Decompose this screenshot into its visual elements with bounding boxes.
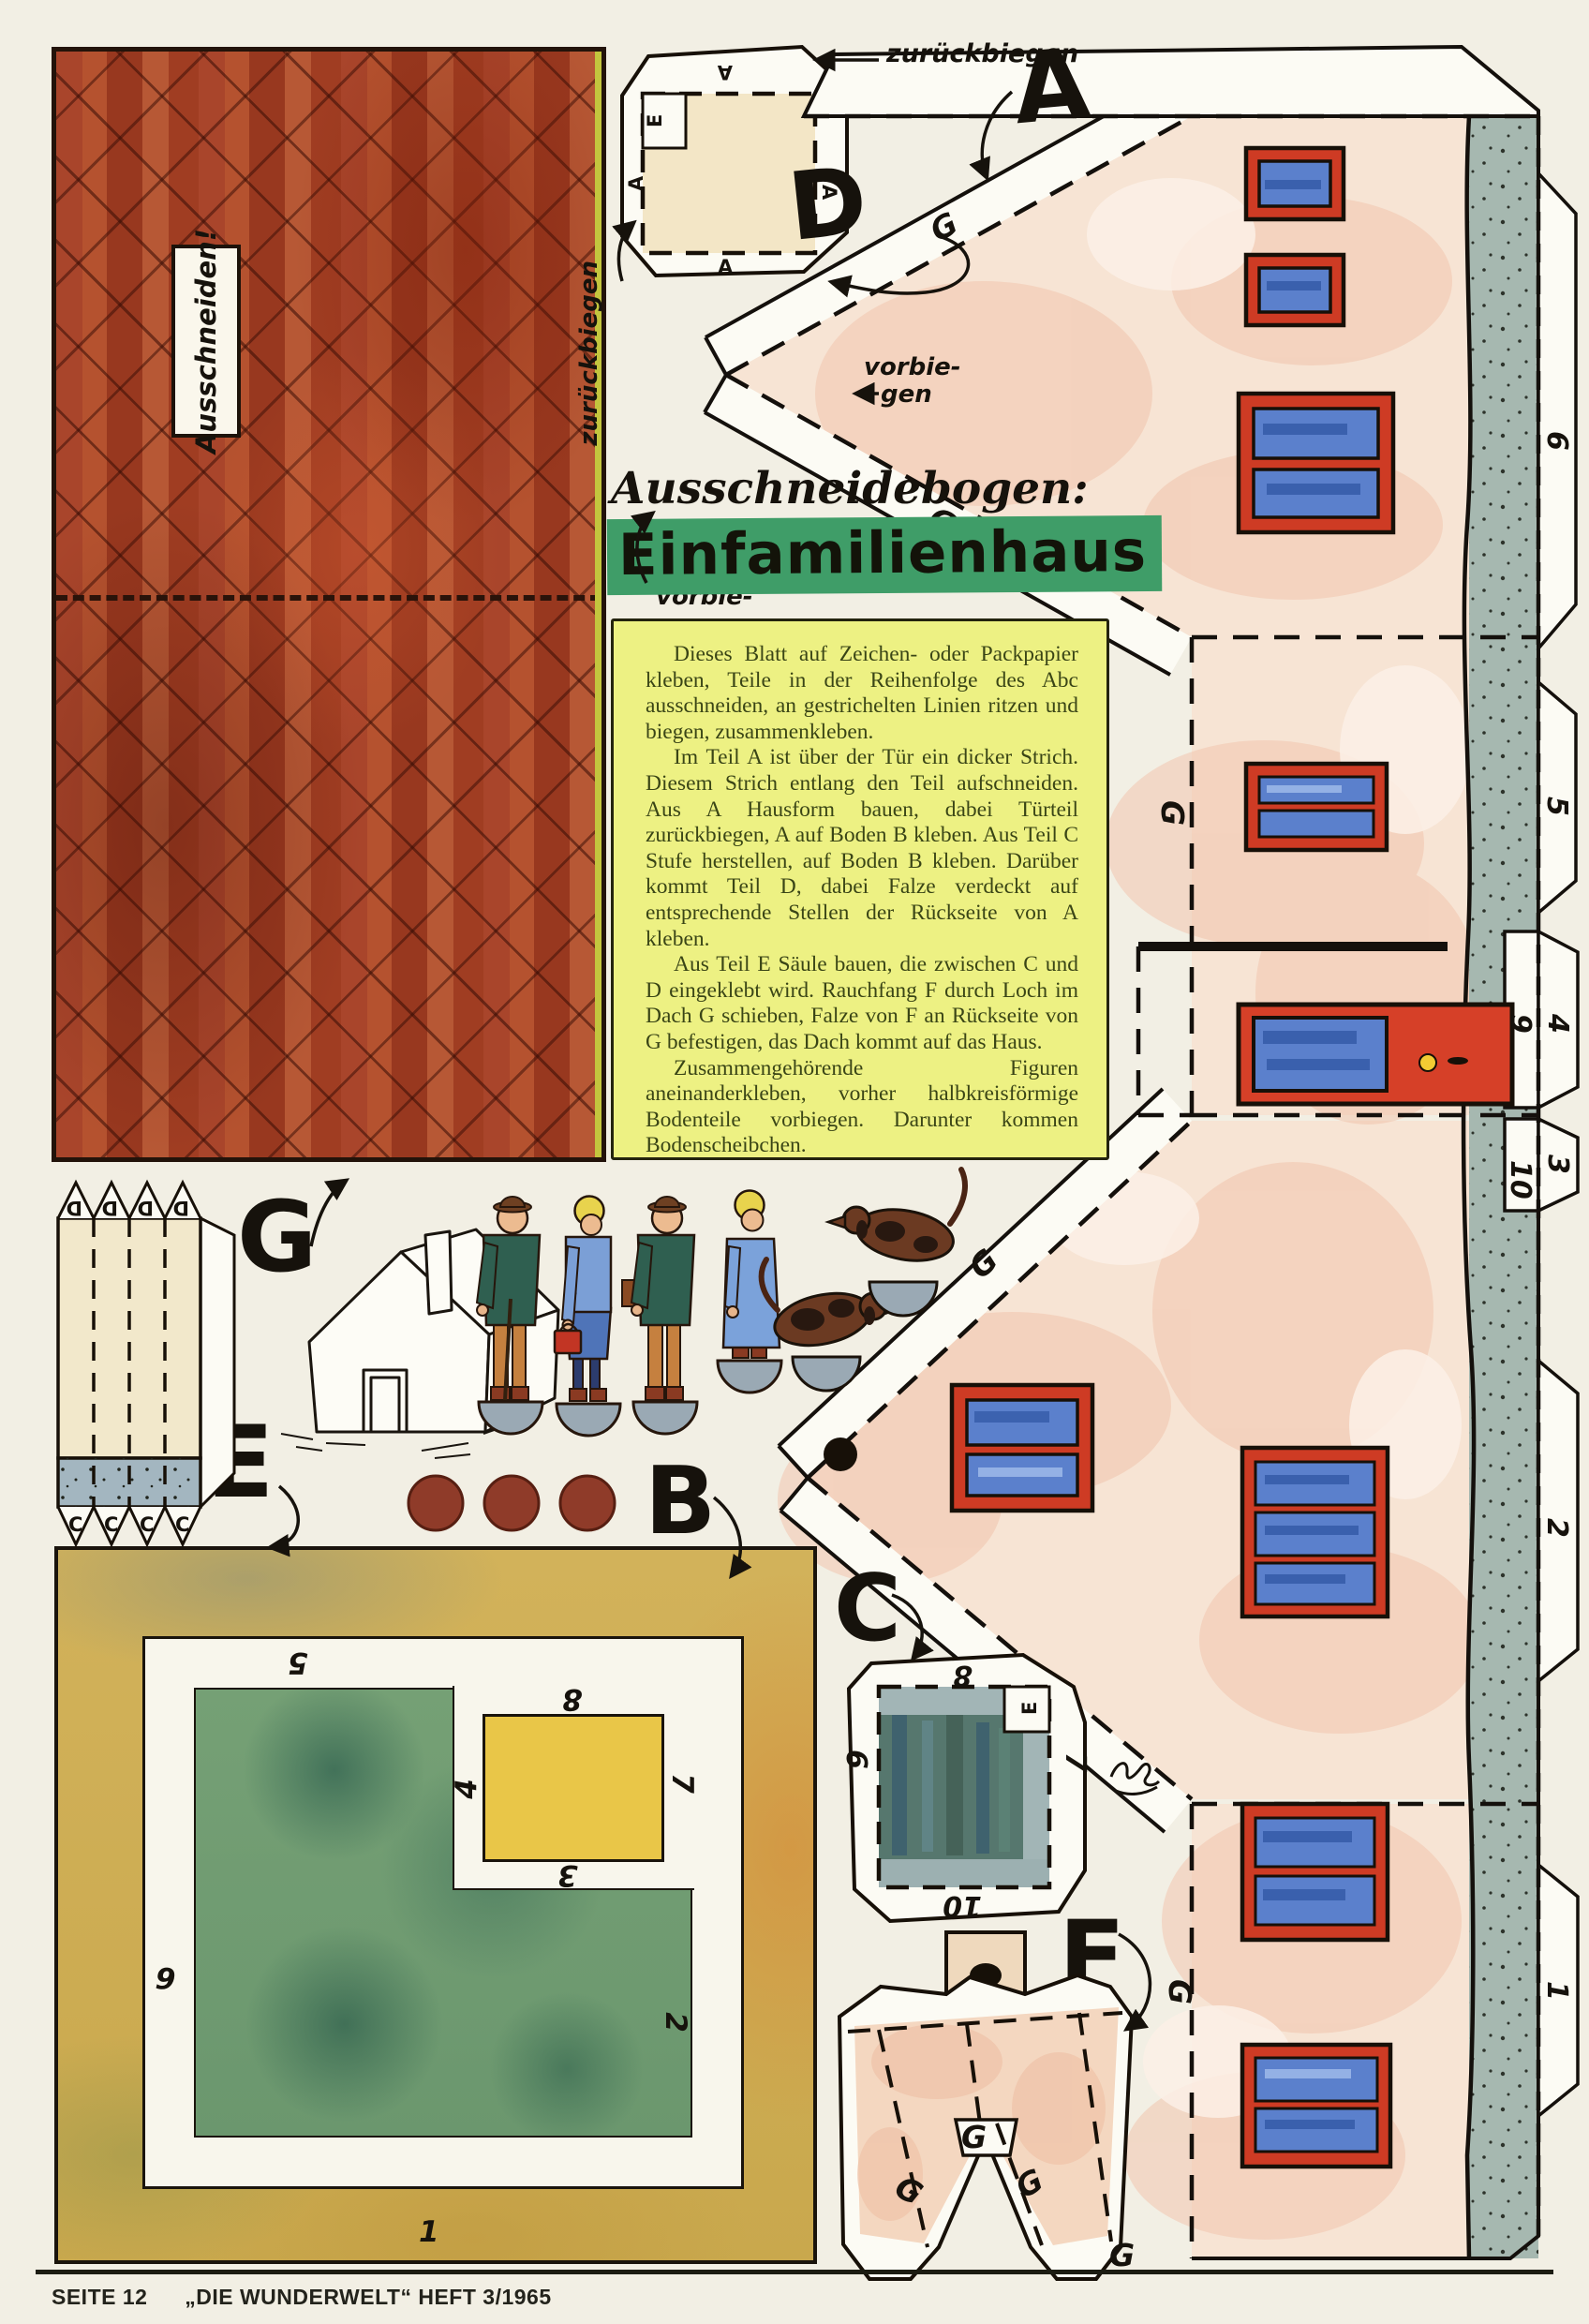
- g-label: G: [1162, 1979, 1198, 2004]
- part-b-step-square: [483, 1714, 664, 1862]
- instruction-paragraph: Dieses Blatt auf Zeichen- oder Packpapie…: [646, 642, 1078, 745]
- figures-group: [412, 1162, 1021, 1546]
- ground-discs: [408, 1476, 615, 1530]
- tab-label: D: [138, 1197, 154, 1219]
- part-f-chimney: G G G G: [824, 1912, 1162, 2315]
- tab-label: 9: [1504, 1014, 1537, 1034]
- g-label: G: [1109, 2237, 1135, 2273]
- plate-num: 5: [288, 1646, 308, 1679]
- figure-man-with-satchel: [622, 1197, 697, 1434]
- figure-woman-long-dress: [718, 1191, 781, 1393]
- part-b-glue-frame: 8 4 7 3: [142, 1636, 744, 2189]
- cut-here-label-box: Ausschneiden!: [171, 245, 241, 438]
- part-c-label-e: E: [1018, 1702, 1041, 1715]
- tab-label: 8: [953, 1659, 973, 1691]
- instruction-paragraph: Im Teil A ist über der Tür ein dicker St…: [646, 745, 1078, 952]
- tab-label: D: [67, 1197, 82, 1219]
- figure-man-with-cane: [477, 1197, 542, 1434]
- tab-label: C: [175, 1513, 189, 1536]
- part-b-baseplate: 8 4 7 3 5 6 1 2: [54, 1546, 817, 2264]
- annotation-fold-fwd: vorbie- gen: [864, 354, 961, 409]
- g-label: G: [1154, 800, 1191, 826]
- arrow-part-e: [271, 1486, 298, 1547]
- sheet-subtitle: Ausschneidebogen:: [611, 463, 1089, 514]
- footer: SEITE 12 „DIE WUNDERWELT“ HEFT 3/1965: [52, 2285, 552, 2310]
- tab-label: 4: [1541, 1013, 1574, 1034]
- tab-label: 5: [1540, 797, 1573, 816]
- figure-woman-with-handbag: [555, 1197, 620, 1437]
- annotation-fold-back-side: zurückbiegen: [575, 261, 603, 453]
- tab-label: C: [104, 1513, 118, 1536]
- part-c-step: E 8 9 7 10: [824, 1546, 1134, 1940]
- tab-label: 1: [1540, 1981, 1573, 2001]
- plate-num: 7: [665, 1773, 699, 1794]
- instruction-box: Dieses Blatt auf Zeichen- oder Packpapie…: [611, 618, 1109, 1160]
- roof-piece-g: Ausschneiden!: [52, 47, 606, 1162]
- tab-label: 10: [1504, 1160, 1537, 1199]
- sheet-title: Einfamilienhaus: [607, 515, 1163, 595]
- instruction-paragraph: Zusammengehörende Figuren aneinanderkleb…: [646, 1056, 1078, 1159]
- footer-rule: [36, 2270, 1553, 2274]
- footer-page: SEITE 12: [52, 2285, 147, 2309]
- tab-label: C: [68, 1513, 82, 1536]
- instruction-paragraph: Aus Teil E Säule bauen, die zwischen C u…: [646, 952, 1078, 1055]
- part-c-band-bottom: [879, 1859, 1049, 1887]
- door-knob: [1419, 1054, 1436, 1071]
- tab-label: 6: [1540, 431, 1573, 451]
- g-label: G: [961, 2119, 987, 2155]
- sketch-door-inner: [371, 1378, 399, 1432]
- tab-label: 7: [1059, 1752, 1092, 1772]
- plate-num: 6: [155, 1959, 176, 1994]
- roof-ridge-foldline: [56, 595, 601, 601]
- part-e-side-flap: [200, 1218, 234, 1507]
- plate-num: 3: [557, 1858, 578, 1892]
- part-letter-a: A: [1010, 35, 1093, 139]
- plate-num: 4: [450, 1779, 483, 1799]
- cut-here-label: Ausschneiden!: [190, 229, 222, 454]
- tab-label: D: [102, 1197, 118, 1219]
- part-d-label-e: E: [644, 114, 666, 127]
- tab-label: C: [140, 1513, 154, 1536]
- front-door: [1239, 1005, 1512, 1104]
- tab-label: 9: [842, 1750, 875, 1769]
- part-b-step-notch: 8 4 7 3: [453, 1686, 694, 1890]
- tab-label: D: [173, 1197, 189, 1219]
- part-d-label-a-left: A: [625, 175, 647, 191]
- part-letter-d: D: [784, 154, 871, 255]
- part-e-column-strips: D D D D C C C C: [47, 1171, 244, 1556]
- tab-label: 2: [1540, 1518, 1573, 1538]
- footer-magazine: „DIE WUNDERWELT“ HEFT 3/1965: [185, 2285, 551, 2309]
- figure-dog-lower: [762, 1259, 901, 1391]
- tab-label: 3: [1541, 1155, 1574, 1174]
- plate-num: 2: [659, 2012, 692, 2033]
- plate-num: 8: [562, 1682, 583, 1716]
- plate-num: 1: [419, 2215, 439, 2249]
